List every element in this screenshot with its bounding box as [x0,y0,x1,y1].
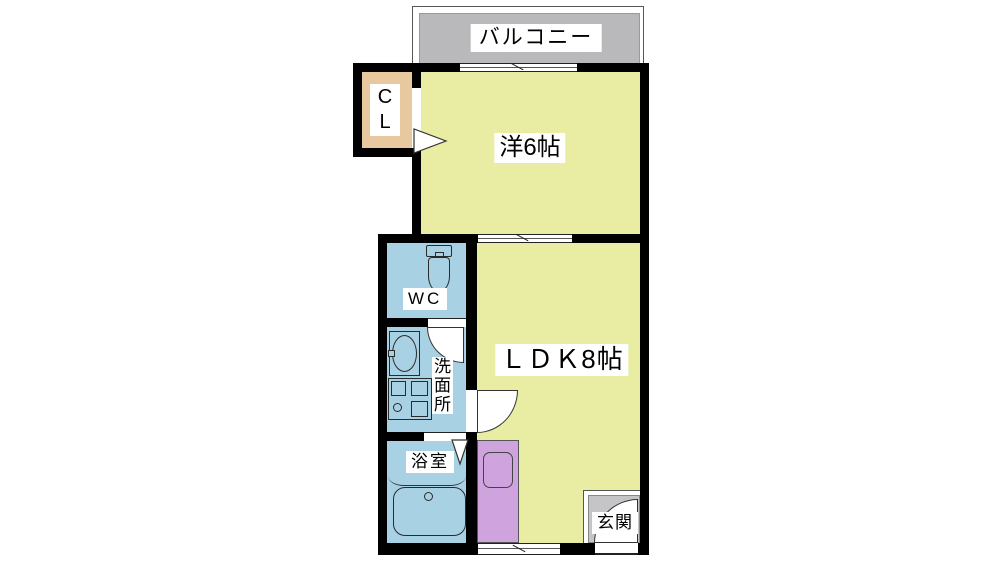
washroom-label-char: 面 [432,376,453,395]
bedroom-label: 洋6帖 [494,133,565,163]
wall-lower-left [378,234,387,555]
wall-closet-left [353,63,362,157]
pan-corner-icon [391,381,406,396]
bathtub-drain-icon [424,492,433,501]
closet-label: C L [370,84,400,136]
wall-bedroom-left-lower [412,148,421,243]
closet-door-triangle [413,128,448,155]
wc-label: WC [403,288,447,310]
washroom-label-char: 所 [432,395,453,414]
washroom-label-char: 洗 [432,357,453,376]
washroom-door-opening [466,390,477,432]
kitchen-sink-icon [483,452,513,488]
wall-divider-left [378,234,478,243]
balcony-label: バルコニー [471,24,602,52]
wall-bottom-mid [560,543,595,555]
wall-closet-bottom [353,148,421,157]
wall-top-right [577,63,649,72]
wall-right [640,63,649,555]
pan-corner-icon [411,401,428,417]
ldk-label: ＬＤＫ8帖 [495,344,628,376]
wall-wc-washroom [387,318,428,327]
closet-label-line1: C [370,85,400,110]
wall-bottom-right [638,543,649,555]
pan-drain-icon [393,403,402,412]
wall-closet-top [353,63,421,72]
toilet-bowl-icon [428,257,450,292]
closet-label-line2: L [370,110,400,135]
washbasin-bowl-icon [392,335,417,372]
wall-wet-ldk-upper [466,234,477,390]
entrance-door-opening [595,543,638,555]
entrance-label: 玄関 [592,512,638,534]
wall-divider-right [572,234,649,243]
wall-washroom-bathroom [387,432,424,441]
bathroom-label: 浴室 [406,451,454,473]
washbasin-tap-icon [388,350,395,357]
pan-corner-icon [411,381,428,396]
wall-bottom-left [378,543,478,555]
bathtub-rim-line [388,474,466,486]
washroom-label: 洗 面 所 [432,357,453,414]
wc-door-opening [428,318,466,327]
floor-plan: バルコニー C L 洋6帖 WC 洗 面 所 ＬＤＫ8帖 浴室 玄関 [0,0,1000,562]
